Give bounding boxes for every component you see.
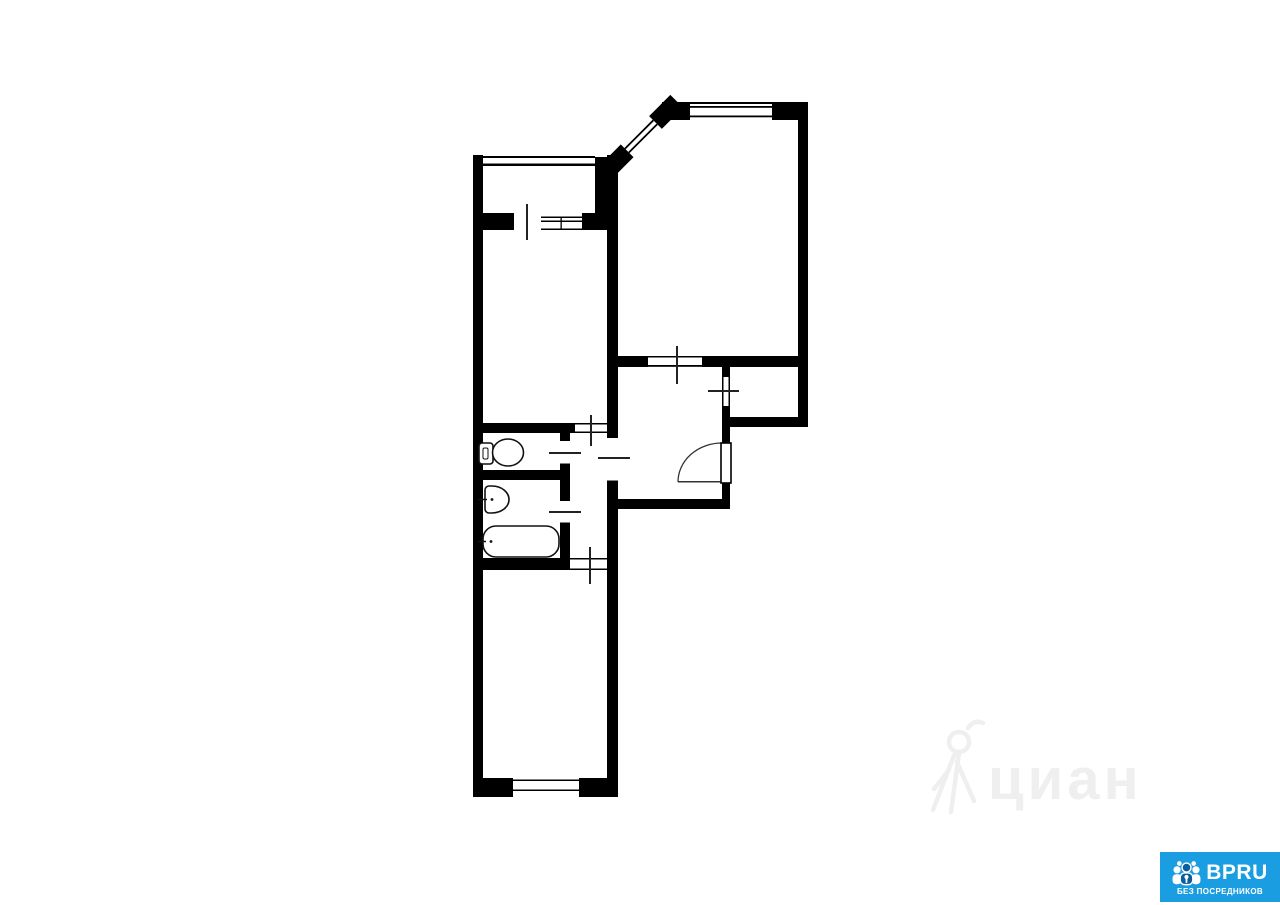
room-door-tick [590,415,592,446]
bottom-room-opening [570,558,607,570]
bpru-badge-top: BPRU [1170,859,1268,886]
bottom-opening-tick [589,547,591,584]
balcony-door-tick [526,204,528,240]
wall [473,778,513,797]
jamb-line [560,464,570,466]
bpru-brand-name: BPRU [1206,862,1268,883]
wall [722,425,730,443]
balcony-rail-line [483,164,595,167]
window-line [561,217,562,229]
jamb-line [570,569,607,571]
door-ticks [526,204,739,584]
door-swing-arc [678,443,722,482]
jamb-line [648,356,702,358]
niche-window-tick [708,390,739,392]
wall [618,499,730,509]
window-line [690,106,772,108]
cian-walking-person-icon [933,722,983,812]
wall [722,417,808,427]
door-open-line [678,481,722,483]
entrance-door [678,443,731,483]
hall-opening-tick [676,346,678,384]
jamb-line [560,523,570,525]
window-line [690,116,772,118]
jamb-line [560,440,570,442]
jamb-line [607,437,618,439]
cian-watermark-text: циан [988,747,1143,812]
jamb-line [648,365,702,367]
hall-door-tick [598,457,630,459]
wall [798,102,808,427]
window-line [513,790,579,792]
bpru-tagline: БЕЗ ПОСРЕДНИКОВ [1177,888,1263,896]
wall [473,470,570,480]
wall [618,356,808,367]
diagonal-bay-wall [597,95,683,181]
window-frame-lines [513,106,772,791]
wc-door-tick [549,452,581,454]
balcony-rail-line [483,156,595,158]
door-leaf [721,443,731,483]
wall [579,778,618,797]
jamb-line [560,500,570,502]
bathtub-icon [478,526,559,557]
window-line [513,780,579,782]
jamb-line [607,481,618,483]
jamb-line [570,558,607,560]
floor-plan-page: циан BPRU БЕЗ ПОСРЕДНИКОВ [0,0,1280,905]
bath-door-tick [549,511,581,513]
bpru-people-group-icon [1170,859,1203,886]
bpru-badge: BPRU БЕЗ ПОСРЕДНИКОВ [1160,852,1280,902]
cian-watermark: циан [933,722,1143,812]
floor-plan: циан [0,0,1280,905]
wall-openings [513,104,772,793]
toilet-icon [479,439,524,466]
